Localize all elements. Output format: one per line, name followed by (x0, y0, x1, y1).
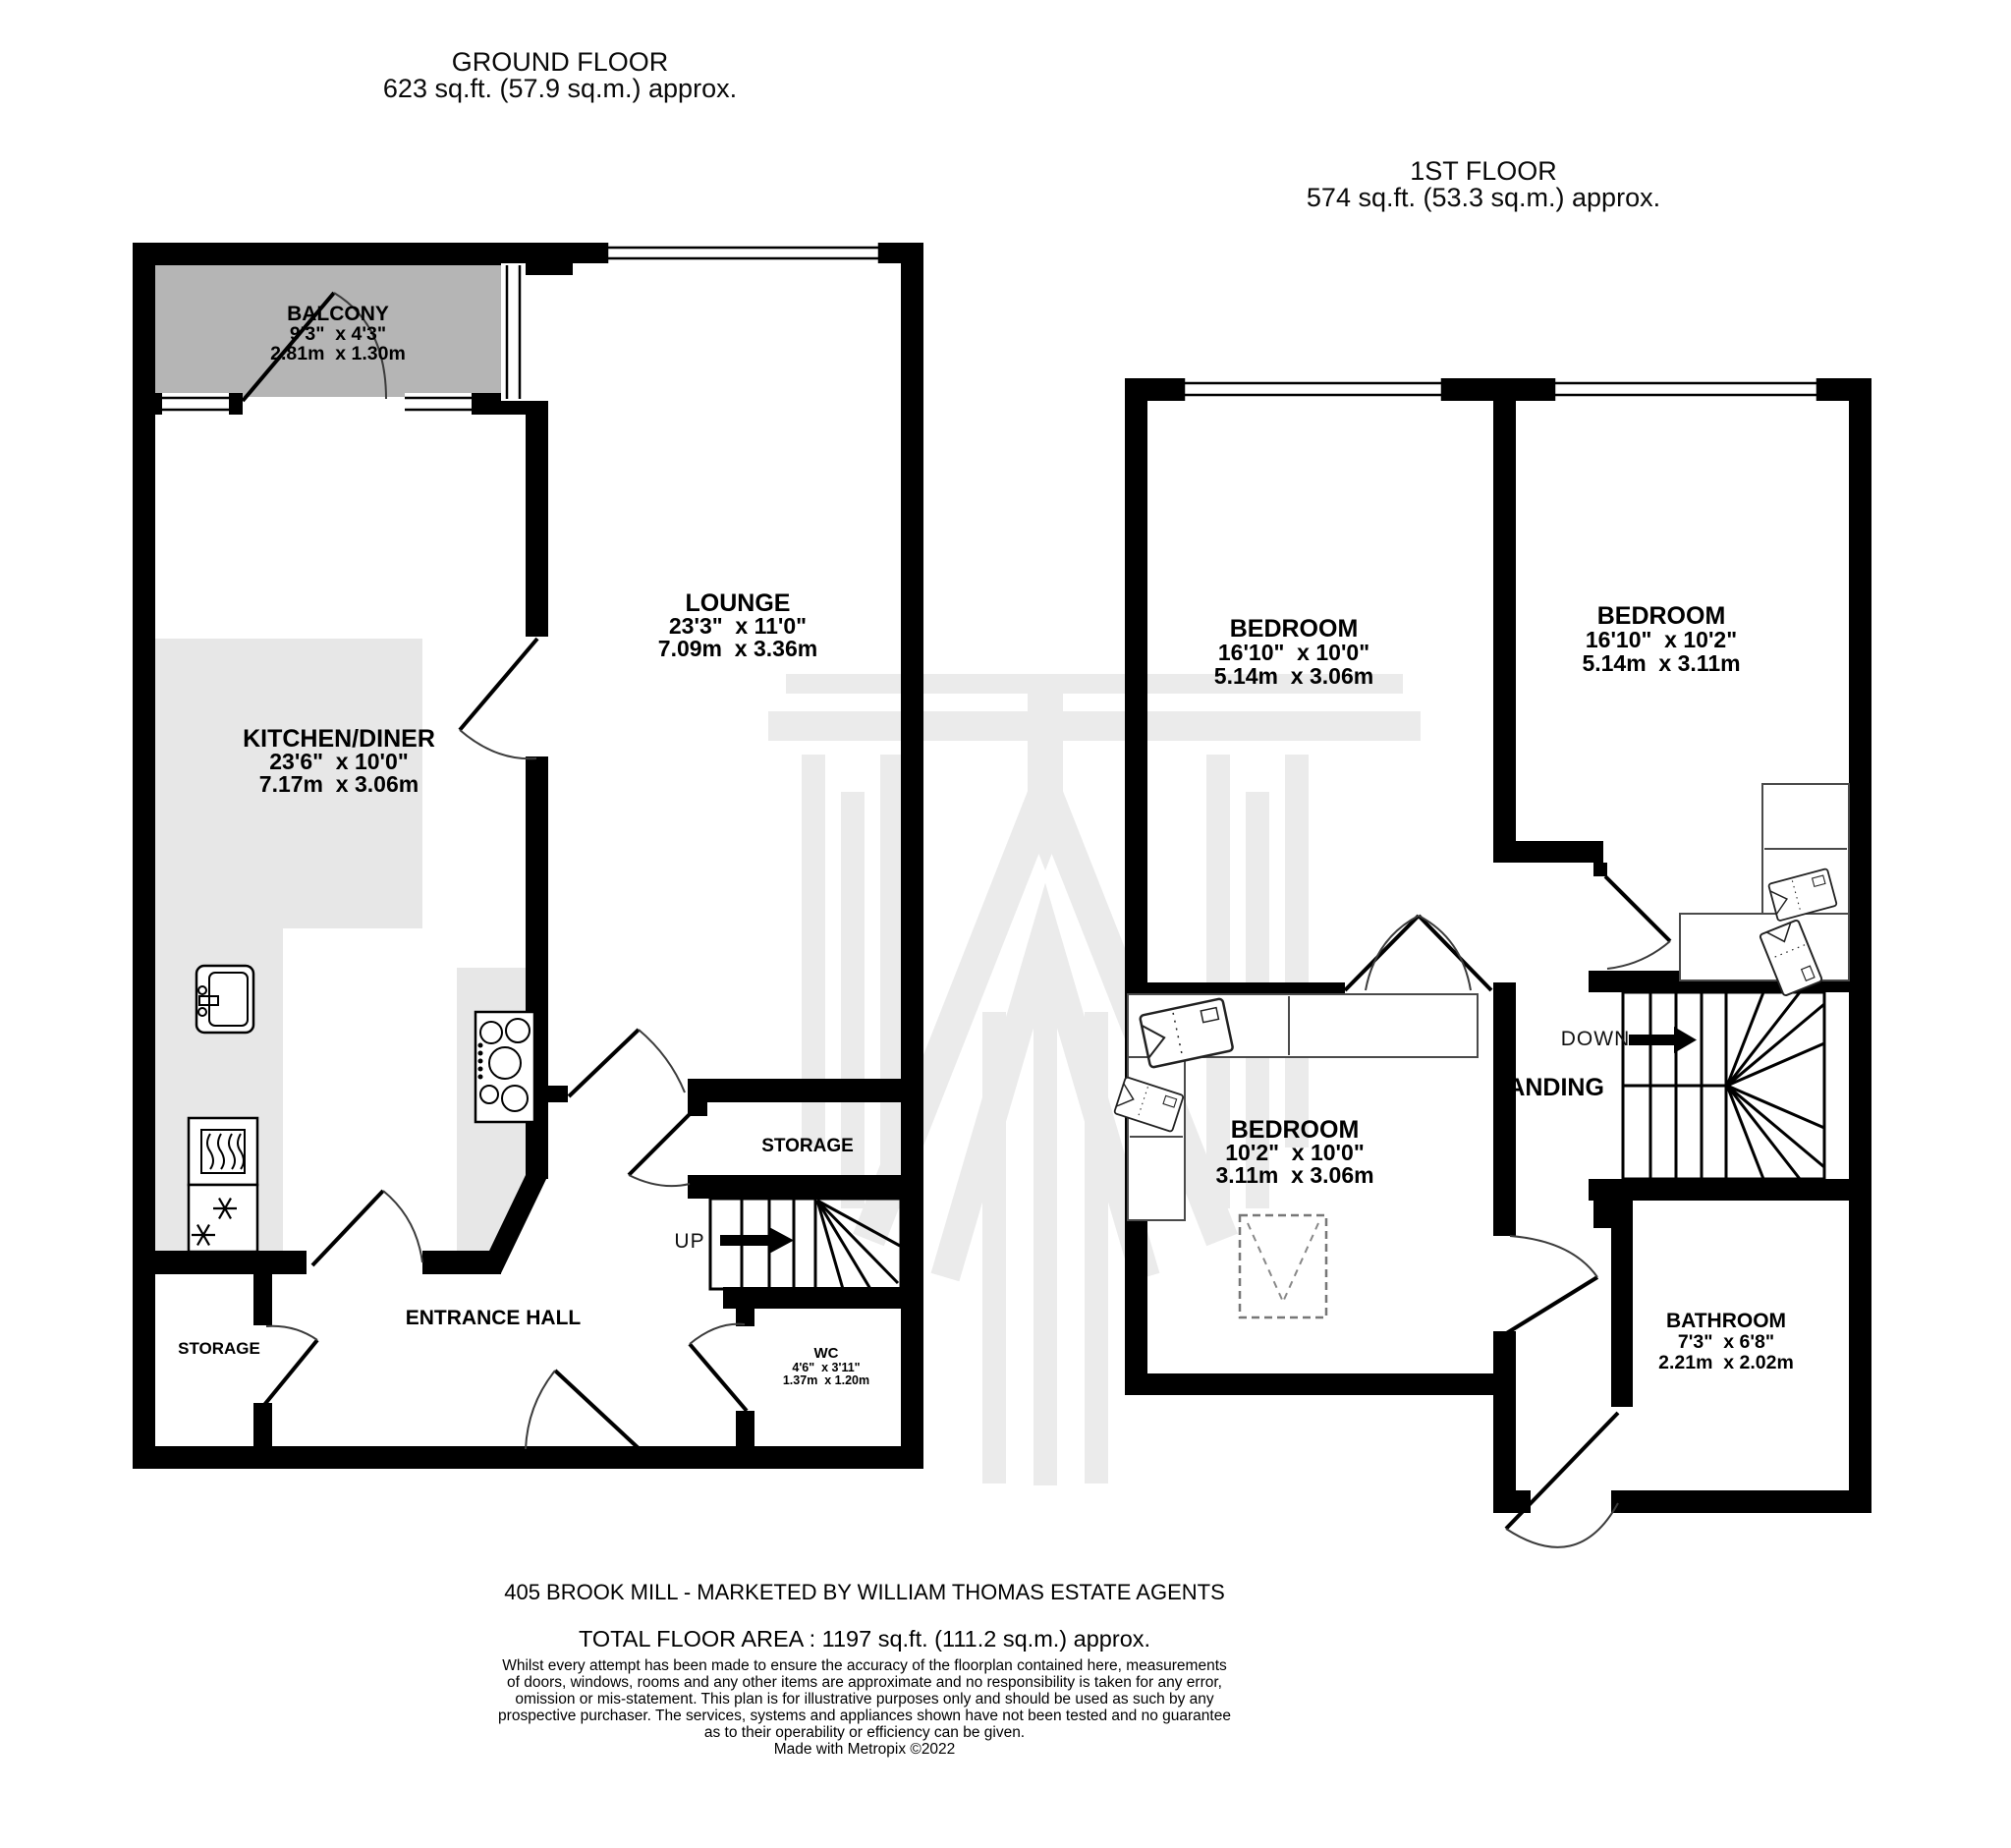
floor-headers: GROUND FLOOR 623 sq.ft. (57.9 sq.m.) app… (383, 47, 1660, 212)
disclaimer-line: prospective purchaser. The services, sys… (498, 1708, 1231, 1724)
disclaimer-line: omission or mis-statement. This plan is … (515, 1691, 1214, 1708)
wc-label: WC (814, 1345, 839, 1362)
bedroom2-label: BEDROOM (1597, 602, 1726, 630)
down-label: DOWN (1561, 1028, 1631, 1050)
balcony-dims-imperial: 9'3" x 4'3" (290, 323, 386, 345)
lounge-window (607, 243, 879, 263)
up-label: UP (674, 1230, 704, 1253)
metropix-credit: Made with Metropix ©2022 (774, 1741, 956, 1758)
marketing-line: 405 BROOK MILL - MARKETED BY WILLIAM THO… (504, 1580, 1225, 1604)
bedroom1-label: BEDROOM (1230, 615, 1359, 643)
hob-icon (475, 1012, 534, 1122)
disclaimer-line: of doors, windows, rooms and any other i… (507, 1674, 1222, 1691)
bedroom3-dims-metric: 3.11m x 3.06m (1215, 1162, 1373, 1188)
landing-label: LANDING (1492, 1074, 1604, 1101)
freezer-icon (189, 1185, 257, 1252)
lounge-dims-metric: 7.09m x 3.36m (658, 636, 817, 661)
floorplan-svg: BALCONY 9'3" x 4'3" 2.81m x 1.30m LOUNGE… (0, 0, 2011, 1848)
sink-icon (196, 966, 253, 1033)
balcony-side-window (501, 263, 526, 401)
disclaimer-line: Whilst every attempt has been made to en… (502, 1657, 1227, 1674)
kitchen-dims-metric: 7.17m x 3.06m (259, 771, 419, 797)
bedroom2-dims-metric: 5.14m x 3.11m (1582, 650, 1740, 676)
bedroom2-dims-imperial: 16'10" x 10'2" (1586, 627, 1737, 652)
entrance-hall-label: ENTRANCE HALL (406, 1307, 582, 1329)
balcony-label: BALCONY (287, 303, 389, 325)
understairs-storage-label: STORAGE (761, 1136, 854, 1156)
bedroom1-dims-metric: 5.14m x 3.06m (1214, 663, 1373, 689)
balcony-window-right (405, 393, 472, 415)
total-floor-area: TOTAL FLOOR AREA : 1197 sq.ft. (111.2 sq… (579, 1626, 1150, 1652)
bathroom-dims-imperial: 7'3" x 6'8" (1678, 1331, 1774, 1353)
oven-icon (189, 1118, 257, 1185)
first-floor-title: 1ST FLOOR (1410, 156, 1557, 186)
bathroom-label: BATHROOM (1666, 1310, 1786, 1332)
wc-dims-metric: 1.37m x 1.20m (783, 1373, 869, 1387)
balcony-window-left (162, 393, 229, 415)
balcony-dims-metric: 2.81m x 1.30m (270, 343, 406, 364)
bathroom-dims-metric: 2.21m x 2.02m (1658, 1352, 1794, 1373)
footer-text: 405 BROOK MILL - MARKETED BY WILLIAM THO… (498, 1580, 1231, 1758)
wc-dims-imperial: 4'6" x 3'11" (792, 1361, 860, 1374)
bedroom2-window (1554, 378, 1817, 401)
first-floor-area: 574 sq.ft. (53.3 sq.m.) approx. (1307, 183, 1660, 212)
disclaimer-line: as to their operability or efficiency ca… (704, 1724, 1025, 1741)
bedroom1-window (1184, 378, 1442, 401)
ground-floor-title: GROUND FLOOR (452, 47, 669, 77)
bedroom1-dims-imperial: 16'10" x 10'0" (1218, 640, 1369, 665)
ground-floor-area: 623 sq.ft. (57.9 sq.m.) approx. (383, 74, 737, 103)
storage-label: STORAGE (178, 1339, 260, 1358)
